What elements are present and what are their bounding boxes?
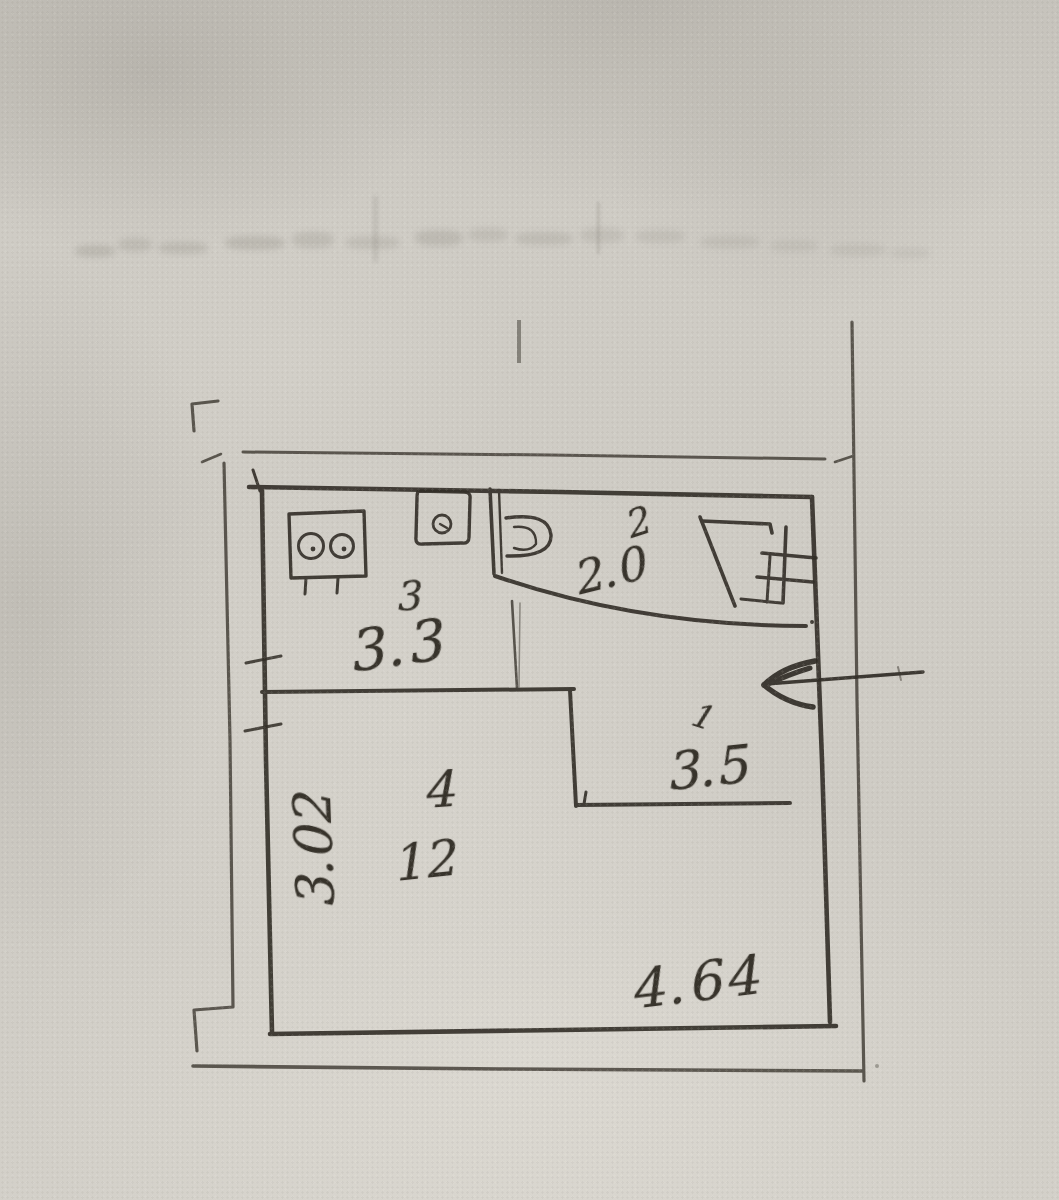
radiator-hash-icon [741,527,816,603]
slant-end-dot [810,620,814,624]
room3-dimension: 3.3 [343,611,447,681]
arrow-barb-bottom [764,685,813,707]
room1-wall [576,803,790,805]
top-dimension-tick [835,456,853,462]
room4-area: 12 [389,833,458,889]
corner-tick [202,454,221,462]
top-wall [249,487,812,497]
corner-mark-icon [192,401,218,431]
left-height-dimension: 3.02 [286,793,342,911]
stray-dot [875,1064,879,1068]
floor-plan-photo: 3 3.3 2 2.0 1 3.5 4 12 3.02 4.64 [0,0,1059,1200]
sink-icon [416,491,470,544]
left-wall [262,490,272,1033]
room4-number: 4 [420,764,455,816]
right-page-line [852,322,864,1081]
bath-hall-divider-2 [499,490,502,573]
survey-lines [192,322,879,1081]
stove-icon [289,511,366,594]
bottom-outer-line [193,1066,863,1071]
step-wall-vertical [570,690,576,806]
door-swing-icon [700,517,772,606]
right-wall [812,497,830,1022]
room3-room4-divider [262,689,574,692]
bottom-width-dimension: 4.64 [626,948,764,1018]
entrance-arrow-icon [764,661,923,707]
door-opening-line-2 [519,603,520,687]
toilet-icon [506,517,551,556]
room1-wall-tick [584,792,586,804]
bath-hall-divider [490,489,494,574]
room1-dimension: 3.5 [662,738,750,798]
door-opening-line [512,601,517,688]
left-outer-line [194,463,233,1051]
bottom-wall [270,1026,836,1034]
top-dimension-line [243,452,825,459]
floor-plan-drawing [0,0,1059,1200]
